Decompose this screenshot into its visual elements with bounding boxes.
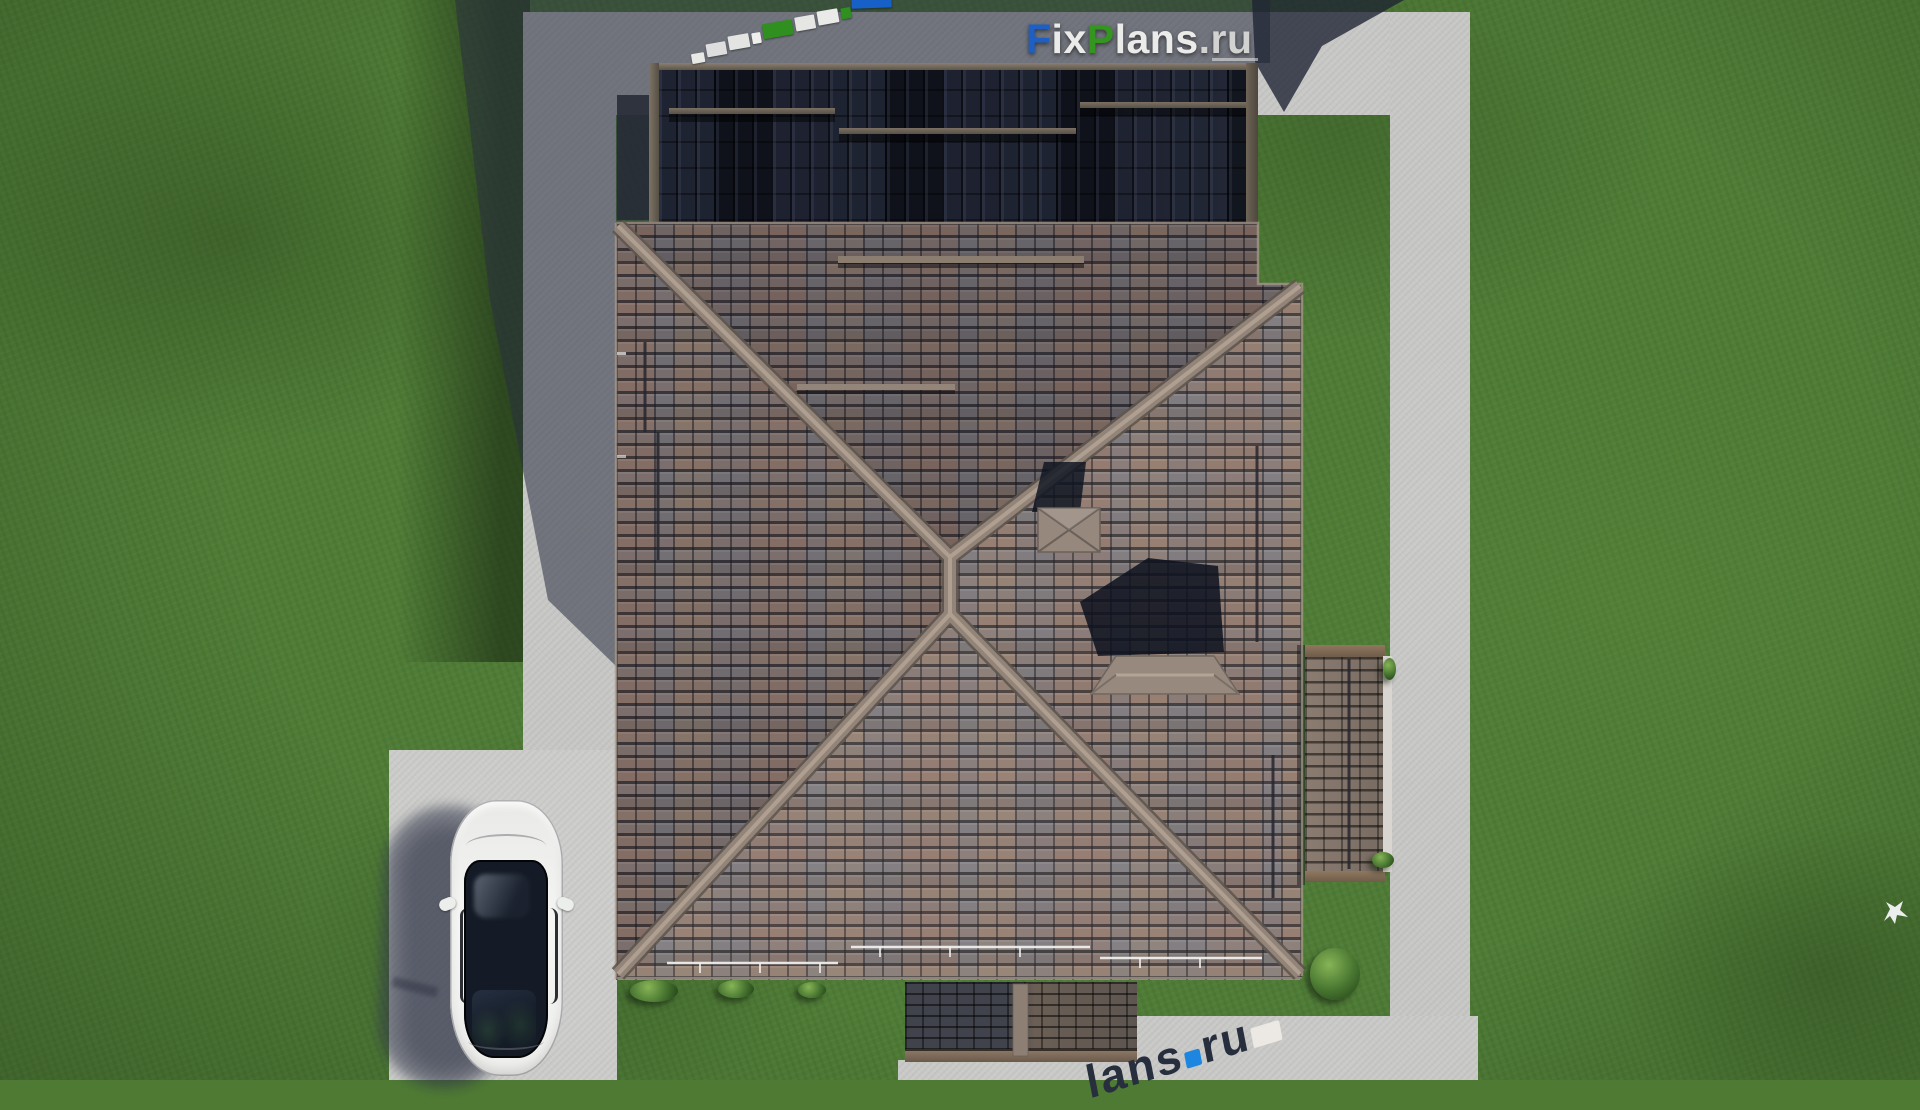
fixplans-logo: FixPlans.ru: [1026, 16, 1253, 62]
distorted-bottom-block-4: [1184, 1048, 1202, 1068]
distorted-block-5: [794, 14, 816, 31]
path-right: [1390, 12, 1470, 1018]
roof-slope-north: [616, 222, 1302, 980]
porch-fascia-bottom: [1305, 871, 1385, 882]
distorted-block-4: [762, 19, 794, 39]
distorted-block-2: [727, 33, 750, 50]
car-windshield-reflection: [474, 874, 530, 918]
bush: [1383, 658, 1396, 680]
white-car: [450, 800, 563, 1076]
bush: [1310, 948, 1360, 1000]
car-glass-roof: [464, 860, 548, 1058]
bush: [718, 980, 754, 998]
upper-roof-step-right-shadow: [1080, 108, 1246, 116]
upper-roof-shadowed: [657, 63, 1258, 230]
porch-fascia-top: [1305, 645, 1385, 657]
distorted-block-7: [840, 7, 852, 20]
render-screenshot: { "scene": { "description": "Aerial top-…: [0, 0, 1920, 1080]
logo-segment-3: lans: [1115, 16, 1199, 62]
distorted-block-6: [816, 8, 839, 25]
distorted-block-0: [691, 52, 706, 64]
main-hip-roof: [616, 222, 1302, 980]
upper-roof-step-left-shadow: [669, 114, 835, 122]
car-hood-seam: [466, 834, 546, 858]
porch-gap-shadow: [1297, 645, 1305, 885]
porch-roof: [1305, 645, 1385, 882]
upper-roof-step-center-shadow: [839, 134, 1076, 142]
car-trunk-seam: [468, 1032, 544, 1050]
logo-segment-2: P: [1087, 16, 1115, 62]
bush: [1372, 852, 1394, 868]
distorted-block-3: [751, 32, 762, 44]
bush: [630, 980, 678, 1002]
logo-segment-1: ix: [1052, 16, 1087, 62]
distorted-block-8: [851, 0, 892, 9]
roof-slope-south: [616, 222, 1302, 980]
fixplans-logo-underline: [1212, 58, 1258, 61]
logo-segment-0: F: [1026, 16, 1052, 62]
distorted-block-1: [705, 41, 727, 57]
upper-roof-fascia-left: [649, 63, 659, 230]
upper-roof-fascia-top: [657, 63, 1258, 70]
distorted-bottom-block-7: [1250, 1020, 1283, 1049]
roof-slope-west: [616, 222, 1302, 980]
porch-wall-strip: [1383, 656, 1392, 872]
logo-segment-4: .ru: [1199, 16, 1253, 62]
bush: [798, 982, 826, 998]
roof-slope-east: [616, 222, 1302, 980]
